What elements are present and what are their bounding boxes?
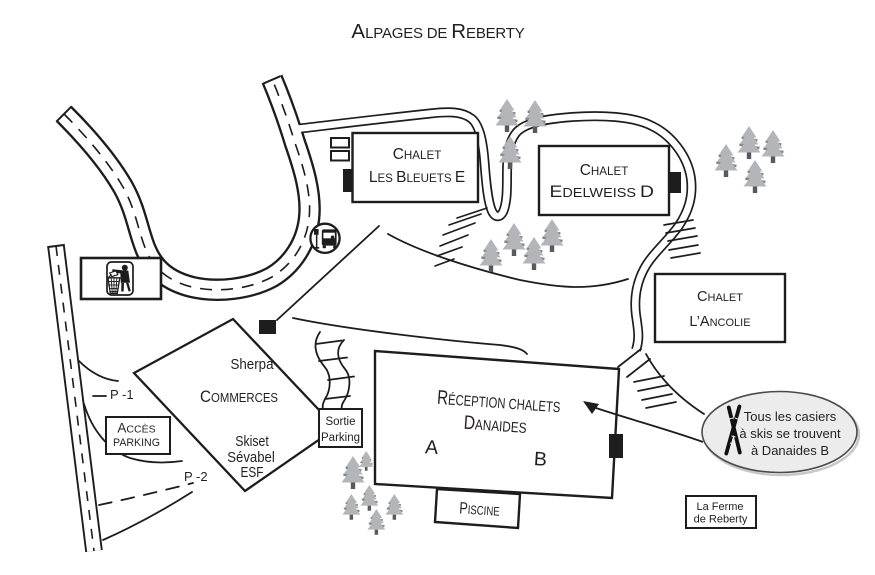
svg-text:PARKING: PARKING [113, 437, 160, 449]
svg-text:CHALET: CHALET [697, 289, 743, 305]
svg-text:LES BLEUETS E: LES BLEUETS E [369, 169, 465, 186]
svg-text:Parking: Parking [321, 432, 360, 444]
svg-text:La Ferme: La Ferme [696, 501, 743, 513]
svg-text:à Danaides B: à Danaides B [751, 443, 829, 458]
svg-text:ESF: ESF [241, 464, 264, 481]
svg-text:de Reberty: de Reberty [694, 514, 748, 526]
svg-text:ACCÈS: ACCÈS [117, 421, 155, 436]
svg-text:Tous les casiers: Tous les casiers [744, 409, 837, 424]
svg-text:ALPAGES DE REBERTY: ALPAGES DE REBERTY [351, 20, 524, 43]
svg-text:P -1: P -1 [110, 387, 134, 402]
svg-text:A: A [424, 436, 439, 459]
svg-text:Skiset: Skiset [235, 433, 269, 450]
svg-text:à skis se trouvent: à skis se trouvent [739, 426, 841, 441]
svg-text:Sortie: Sortie [325, 416, 355, 428]
svg-text:CHALET: CHALET [580, 162, 629, 179]
svg-text:B: B [533, 448, 548, 471]
svg-text:P -2: P -2 [184, 469, 208, 484]
svg-text:L’ANCOLIE: L’ANCOLIE [689, 314, 750, 330]
svg-text:CHALET: CHALET [393, 146, 442, 163]
svg-text:Sherpa: Sherpa [231, 356, 275, 373]
